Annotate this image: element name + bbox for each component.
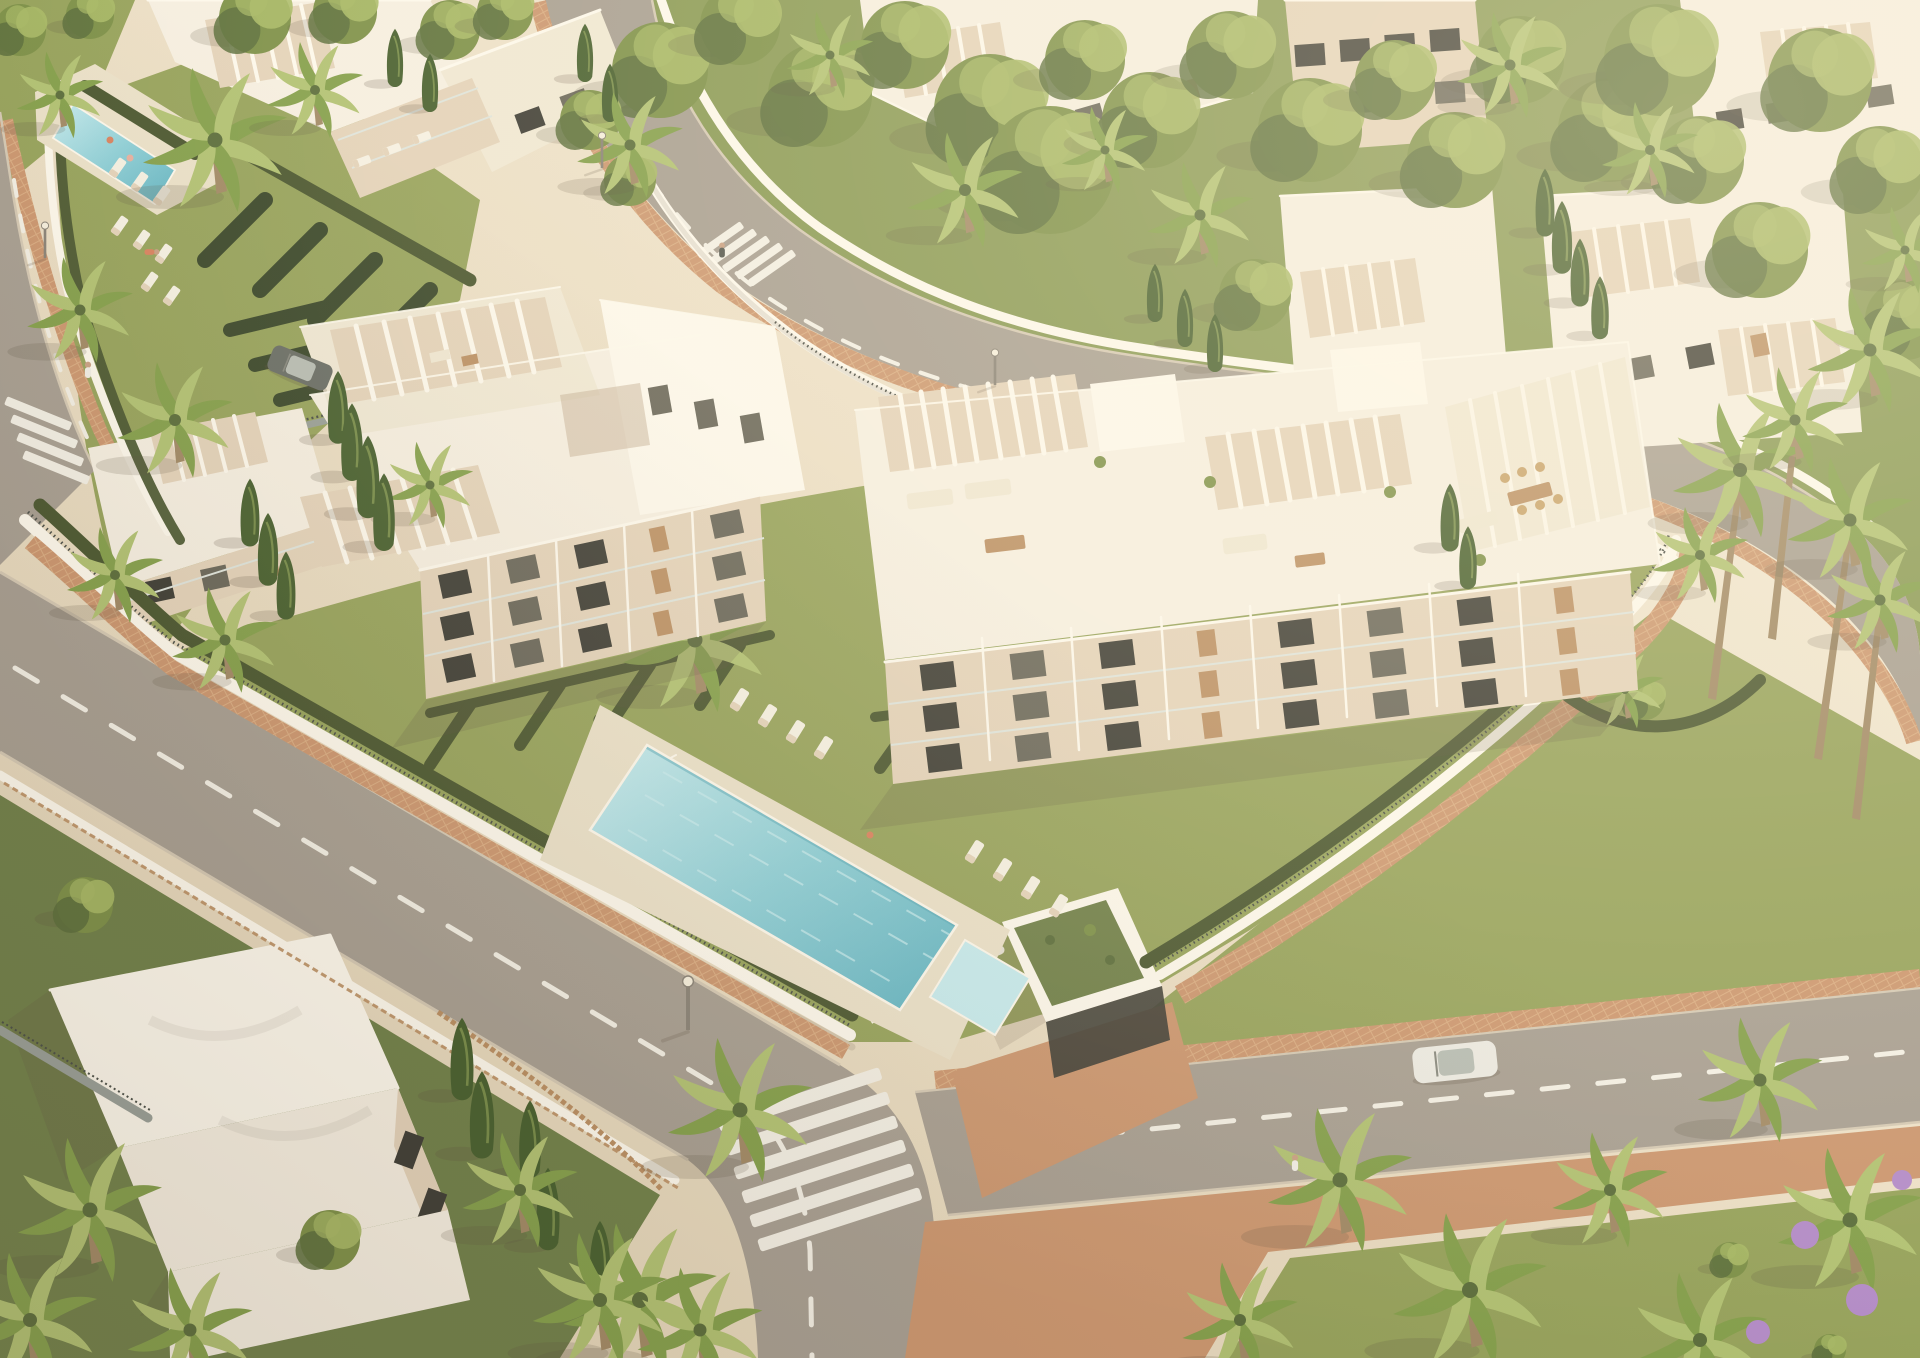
lighting-overlays (0, 0, 1920, 1358)
render-canvas (0, 0, 1920, 1358)
aerial-site-render (0, 0, 1920, 1358)
